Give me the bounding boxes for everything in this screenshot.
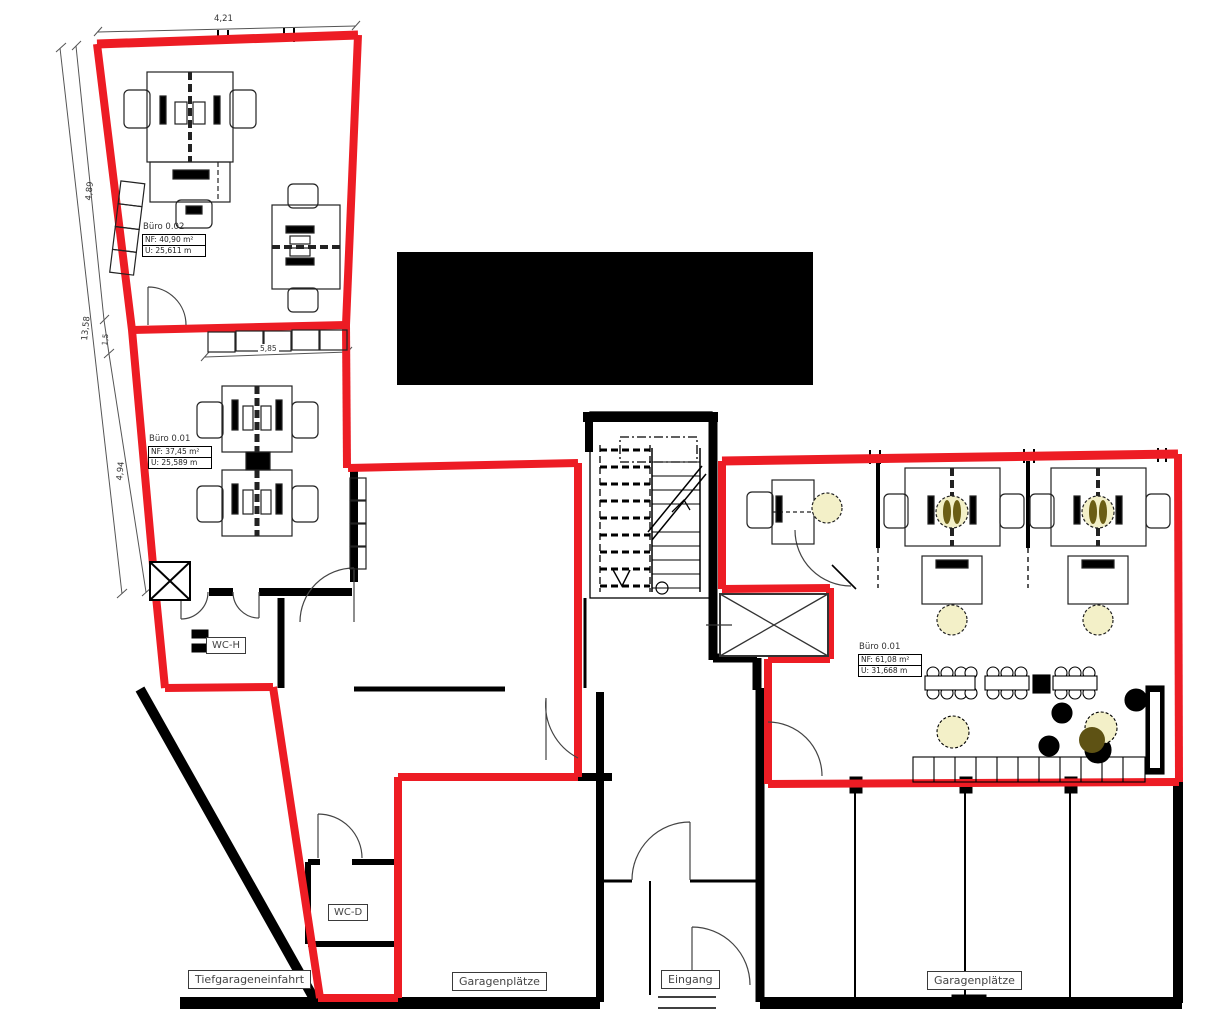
floor-plan-linework <box>0 0 1214 1035</box>
room-title: Büro 0.01 <box>859 642 922 652</box>
staircase <box>600 437 706 594</box>
room-label-buero-0-01-left: Büro 0.01 NF: 37,45 m² U: 25,589 m <box>148 434 212 469</box>
bench-row-1 <box>925 667 977 699</box>
room-label-garagenplaetze-right: Garagenplätze <box>927 971 1022 990</box>
elevator <box>706 594 828 656</box>
meeting-area <box>913 667 1164 782</box>
room-nf: NF: 61,08 m² <box>859 655 921 665</box>
dimension-label-cabinet-row: 5,85 <box>258 344 279 353</box>
room-label-garagenplaetze-left: Garagenplätze <box>452 972 547 991</box>
room-u: U: 25,589 m <box>149 457 211 468</box>
room-label-eingang: Eingang <box>661 970 720 989</box>
dimension-label-left-lower: 4,94 <box>115 461 127 481</box>
shaft-box <box>150 562 190 600</box>
bench-row-2 <box>985 667 1029 699</box>
floor-plan: 4,21 13,58 4,89 1,5 4,94 5,85 Büro 0.02 … <box>0 0 1214 1035</box>
dimension-label-left-mid: 1,5 <box>100 333 110 346</box>
room-title: Büro 0.02 <box>143 222 206 232</box>
entrance-threshold <box>658 995 716 1011</box>
dimension-label-left-upper: 4,89 <box>84 181 96 201</box>
room-label-buero-0-02: Büro 0.02 NF: 40,90 m² U: 25,611 m <box>142 222 206 257</box>
room-label-buero-0-01-right: Büro 0.01 NF: 61,08 m² U: 31,668 m <box>858 642 922 677</box>
room-nf: NF: 37,45 m² <box>149 447 211 457</box>
dimension-label-top: 4,21 <box>214 14 233 24</box>
desks-buero-0-01-left <box>197 330 366 569</box>
room-label-wc-h: WC-H <box>206 637 246 654</box>
redaction-block <box>397 252 813 385</box>
room-label-tiefgarageneinfahrt: Tiefgarageneinfahrt <box>188 970 311 989</box>
bench-row-3 <box>1053 667 1097 699</box>
room-u: U: 25,611 m <box>143 245 205 256</box>
desks-buero-0-02 <box>110 72 340 312</box>
room-label-wc-d: WC-D <box>328 904 368 921</box>
room-nf: NF: 40,90 m² <box>143 235 205 245</box>
room-u: U: 31,668 m <box>859 665 921 676</box>
room-title: Büro 0.01 <box>149 434 212 444</box>
